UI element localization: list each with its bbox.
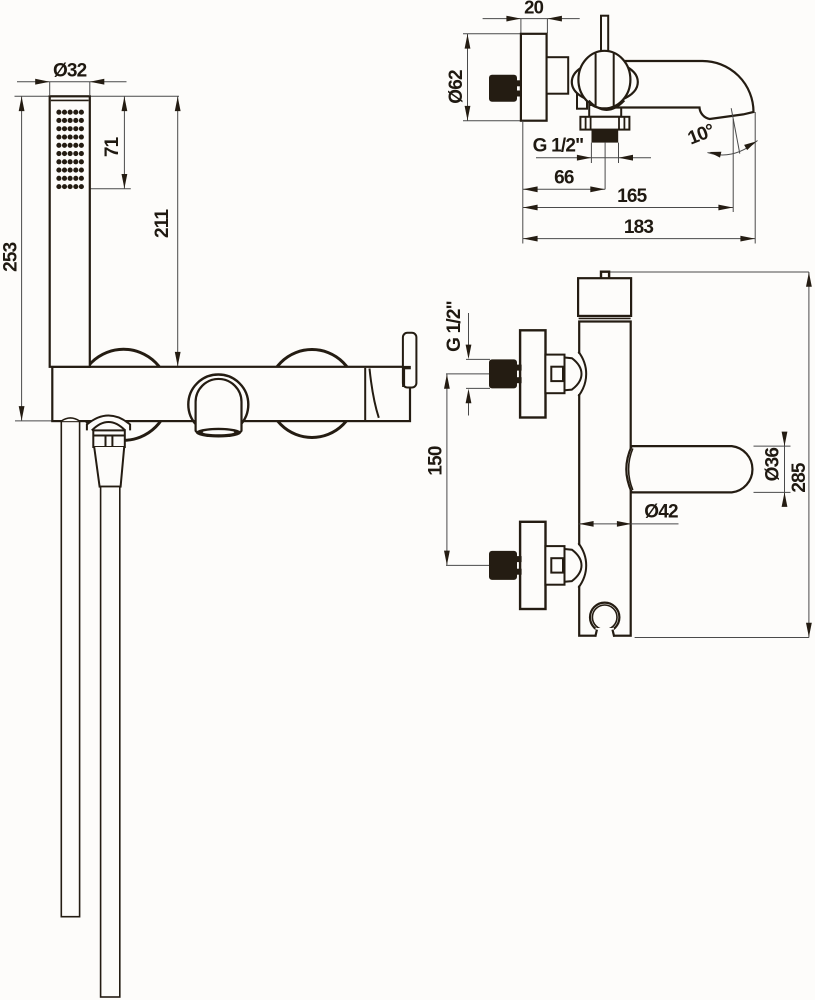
svg-text:183: 183	[624, 217, 654, 238]
svg-text:Ø36: Ø36	[762, 448, 783, 482]
svg-text:Ø62: Ø62	[446, 70, 467, 104]
svg-text:66: 66	[554, 167, 574, 188]
svg-text:165: 165	[617, 186, 648, 207]
svg-text:253: 253	[1, 242, 22, 272]
svg-text:285: 285	[789, 462, 810, 493]
svg-text:G 1/2": G 1/2"	[444, 301, 465, 352]
svg-text:20: 20	[524, 0, 543, 18]
svg-text:Ø42: Ø42	[644, 502, 678, 523]
svg-text:71: 71	[102, 136, 123, 157]
svg-text:211: 211	[152, 209, 173, 238]
svg-text:G 1/2": G 1/2"	[533, 136, 584, 157]
svg-text:Ø32: Ø32	[53, 61, 87, 82]
svg-text:150: 150	[425, 446, 446, 476]
